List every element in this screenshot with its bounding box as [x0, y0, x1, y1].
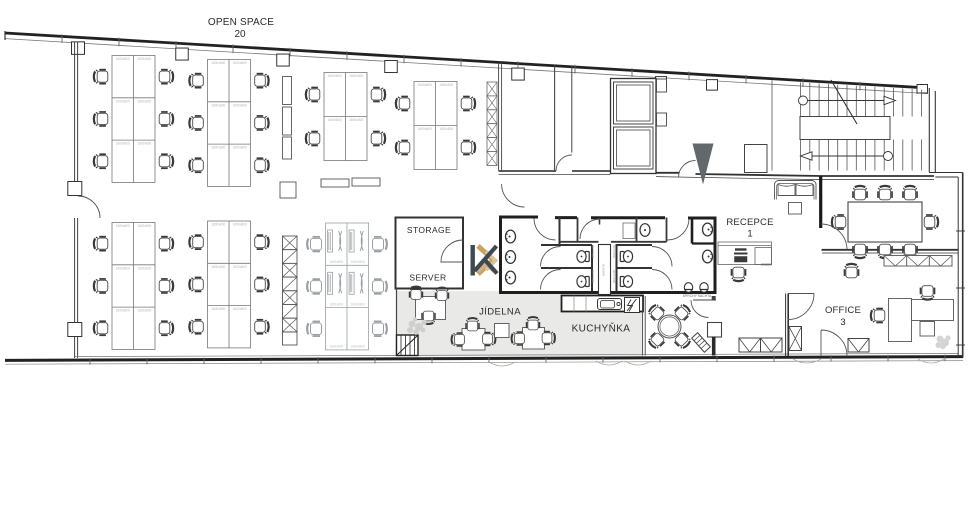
svg-text:1600x800: 1600x800	[211, 146, 225, 150]
svg-text:1600x800: 1600x800	[211, 61, 225, 65]
svg-text:RECEPCE: RECEPCE	[726, 217, 773, 228]
svg-text:1600x800: 1600x800	[137, 309, 151, 313]
svg-text:1600x800: 1600x800	[351, 260, 365, 264]
svg-text:1600x800: 1600x800	[137, 99, 151, 103]
svg-text:1600x800: 1600x800	[328, 74, 342, 78]
svg-text:1600x800: 1600x800	[233, 307, 247, 311]
svg-text:1600x800: 1600x800	[351, 345, 365, 349]
svg-text:OPEN SPACE: OPEN SPACE	[208, 17, 274, 28]
svg-text:SERVER: SERVER	[409, 273, 446, 283]
svg-text:1600x800: 1600x800	[349, 74, 363, 78]
svg-text:1600x800: 1600x800	[116, 57, 130, 61]
svg-text:1600x800: 1600x800	[233, 265, 247, 269]
svg-text:1600x800: 1600x800	[349, 118, 363, 122]
svg-text:OFFICE: OFFICE	[825, 305, 861, 316]
svg-text:20: 20	[234, 29, 246, 40]
svg-text:1600x800: 1600x800	[211, 103, 225, 107]
svg-text:1600x800: 1600x800	[233, 223, 247, 227]
svg-text:KUCHYŇKA: KUCHYŇKA	[572, 322, 631, 335]
svg-text:1600x800: 1600x800	[211, 265, 225, 269]
svg-text:1600x800: 1600x800	[329, 345, 343, 349]
svg-text:1600x800: 1600x800	[351, 302, 365, 306]
svg-text:SACHTA: SACHTA	[602, 264, 606, 276]
svg-text:1600x800: 1600x800	[418, 83, 432, 87]
svg-text:1600x800: 1600x800	[233, 61, 247, 65]
svg-text:900x1200: 900x1200	[591, 269, 595, 283]
svg-text:1600x800: 1600x800	[116, 99, 130, 103]
svg-text:1600x800: 1600x800	[116, 266, 130, 270]
svg-text:1600x800: 1600x800	[439, 83, 453, 87]
svg-text:1600x800: 1600x800	[233, 103, 247, 107]
svg-text:SPRCHY SACHTA: SPRCHY SACHTA	[683, 294, 712, 298]
svg-text:1600x800: 1600x800	[116, 224, 130, 228]
svg-text:1600x800: 1600x800	[329, 302, 343, 306]
svg-text:1600x800: 1600x800	[329, 260, 343, 264]
svg-text:1600x800: 1600x800	[116, 309, 130, 313]
svg-text:1600x800: 1600x800	[328, 118, 342, 122]
svg-text:3: 3	[840, 317, 845, 328]
svg-text:1: 1	[747, 229, 752, 240]
svg-text:1600x800: 1600x800	[137, 142, 151, 146]
svg-text:900x1200: 900x1200	[612, 244, 616, 258]
svg-text:STORAGE: STORAGE	[407, 225, 451, 235]
svg-text:1600x800: 1600x800	[137, 224, 151, 228]
svg-text:1600x800: 1600x800	[418, 127, 432, 131]
svg-text:1600x800: 1600x800	[137, 266, 151, 270]
svg-text:900x1200: 900x1200	[612, 269, 616, 283]
svg-text:1600x800: 1600x800	[233, 146, 247, 150]
svg-text:1600x800: 1600x800	[211, 307, 225, 311]
svg-text:JÍDELNA: JÍDELNA	[479, 307, 521, 318]
svg-text:1600x800: 1600x800	[137, 57, 151, 61]
svg-text:900x1200: 900x1200	[591, 244, 595, 258]
svg-text:1600x800: 1600x800	[211, 223, 225, 227]
svg-text:1600x800: 1600x800	[116, 142, 130, 146]
svg-text:1600x800: 1600x800	[439, 127, 453, 131]
